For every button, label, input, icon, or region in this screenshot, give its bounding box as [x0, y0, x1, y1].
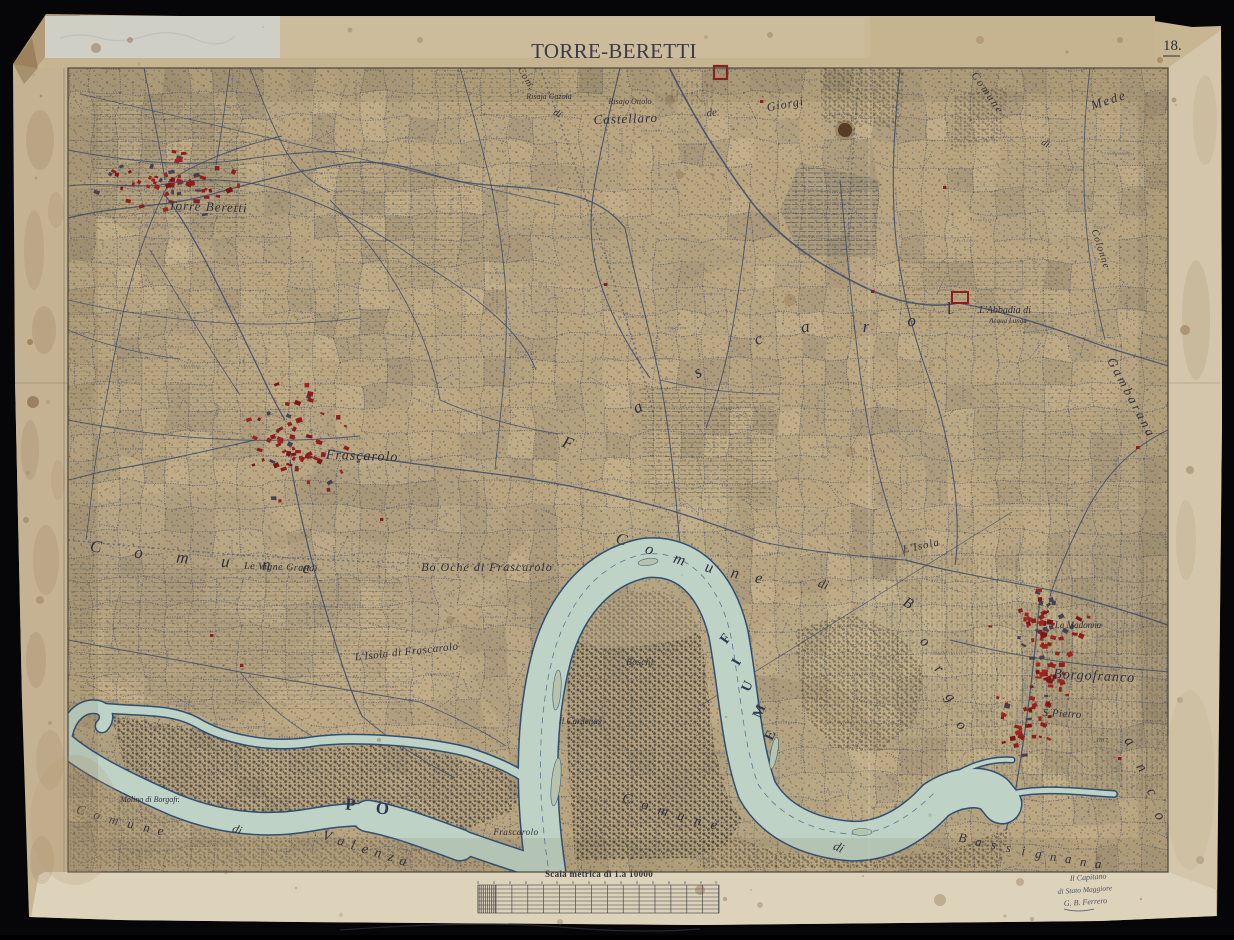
svg-text:L'Abbadia di: L'Abbadia di: [978, 305, 1031, 316]
svg-text:o: o: [906, 311, 916, 331]
svg-text:S.Pietro: S.Pietro: [1042, 707, 1082, 721]
svg-text:Castellaro: Castellaro: [593, 110, 658, 127]
svg-text:TORRE-BERETTI: TORRE-BERETTI: [531, 39, 697, 63]
svg-text:e: e: [302, 558, 311, 577]
svg-text:Torre Beretti: Torre Beretti: [168, 198, 248, 216]
svg-text:Frascarolo: Frascarolo: [492, 827, 538, 837]
svg-text:Molino di Borgofr.: Molino di Borgofr.: [119, 795, 179, 804]
svg-text:1817: 1817: [1096, 738, 1109, 744]
svg-text:P: P: [344, 795, 356, 815]
svg-text:La Madonna: La Madonna: [1054, 620, 1102, 630]
svg-text:Acqua Lunga: Acqua Lunga: [988, 317, 1027, 325]
svg-text:u: u: [220, 552, 230, 572]
svg-text:18.: 18.: [1163, 38, 1182, 54]
svg-text:Frascarolo: Frascarolo: [325, 448, 399, 466]
svg-text:O: O: [375, 798, 390, 818]
svg-text:de: de: [706, 107, 718, 120]
svg-text:Boschi: Boschi: [626, 657, 654, 667]
svg-text:n: n: [261, 555, 271, 575]
svg-text:m: m: [175, 547, 189, 567]
svg-text:Bo Oche di Frascarolo: Bo Oche di Frascarolo: [421, 560, 553, 574]
svg-text:Il Cardenas: Il Cardenas: [558, 716, 602, 726]
